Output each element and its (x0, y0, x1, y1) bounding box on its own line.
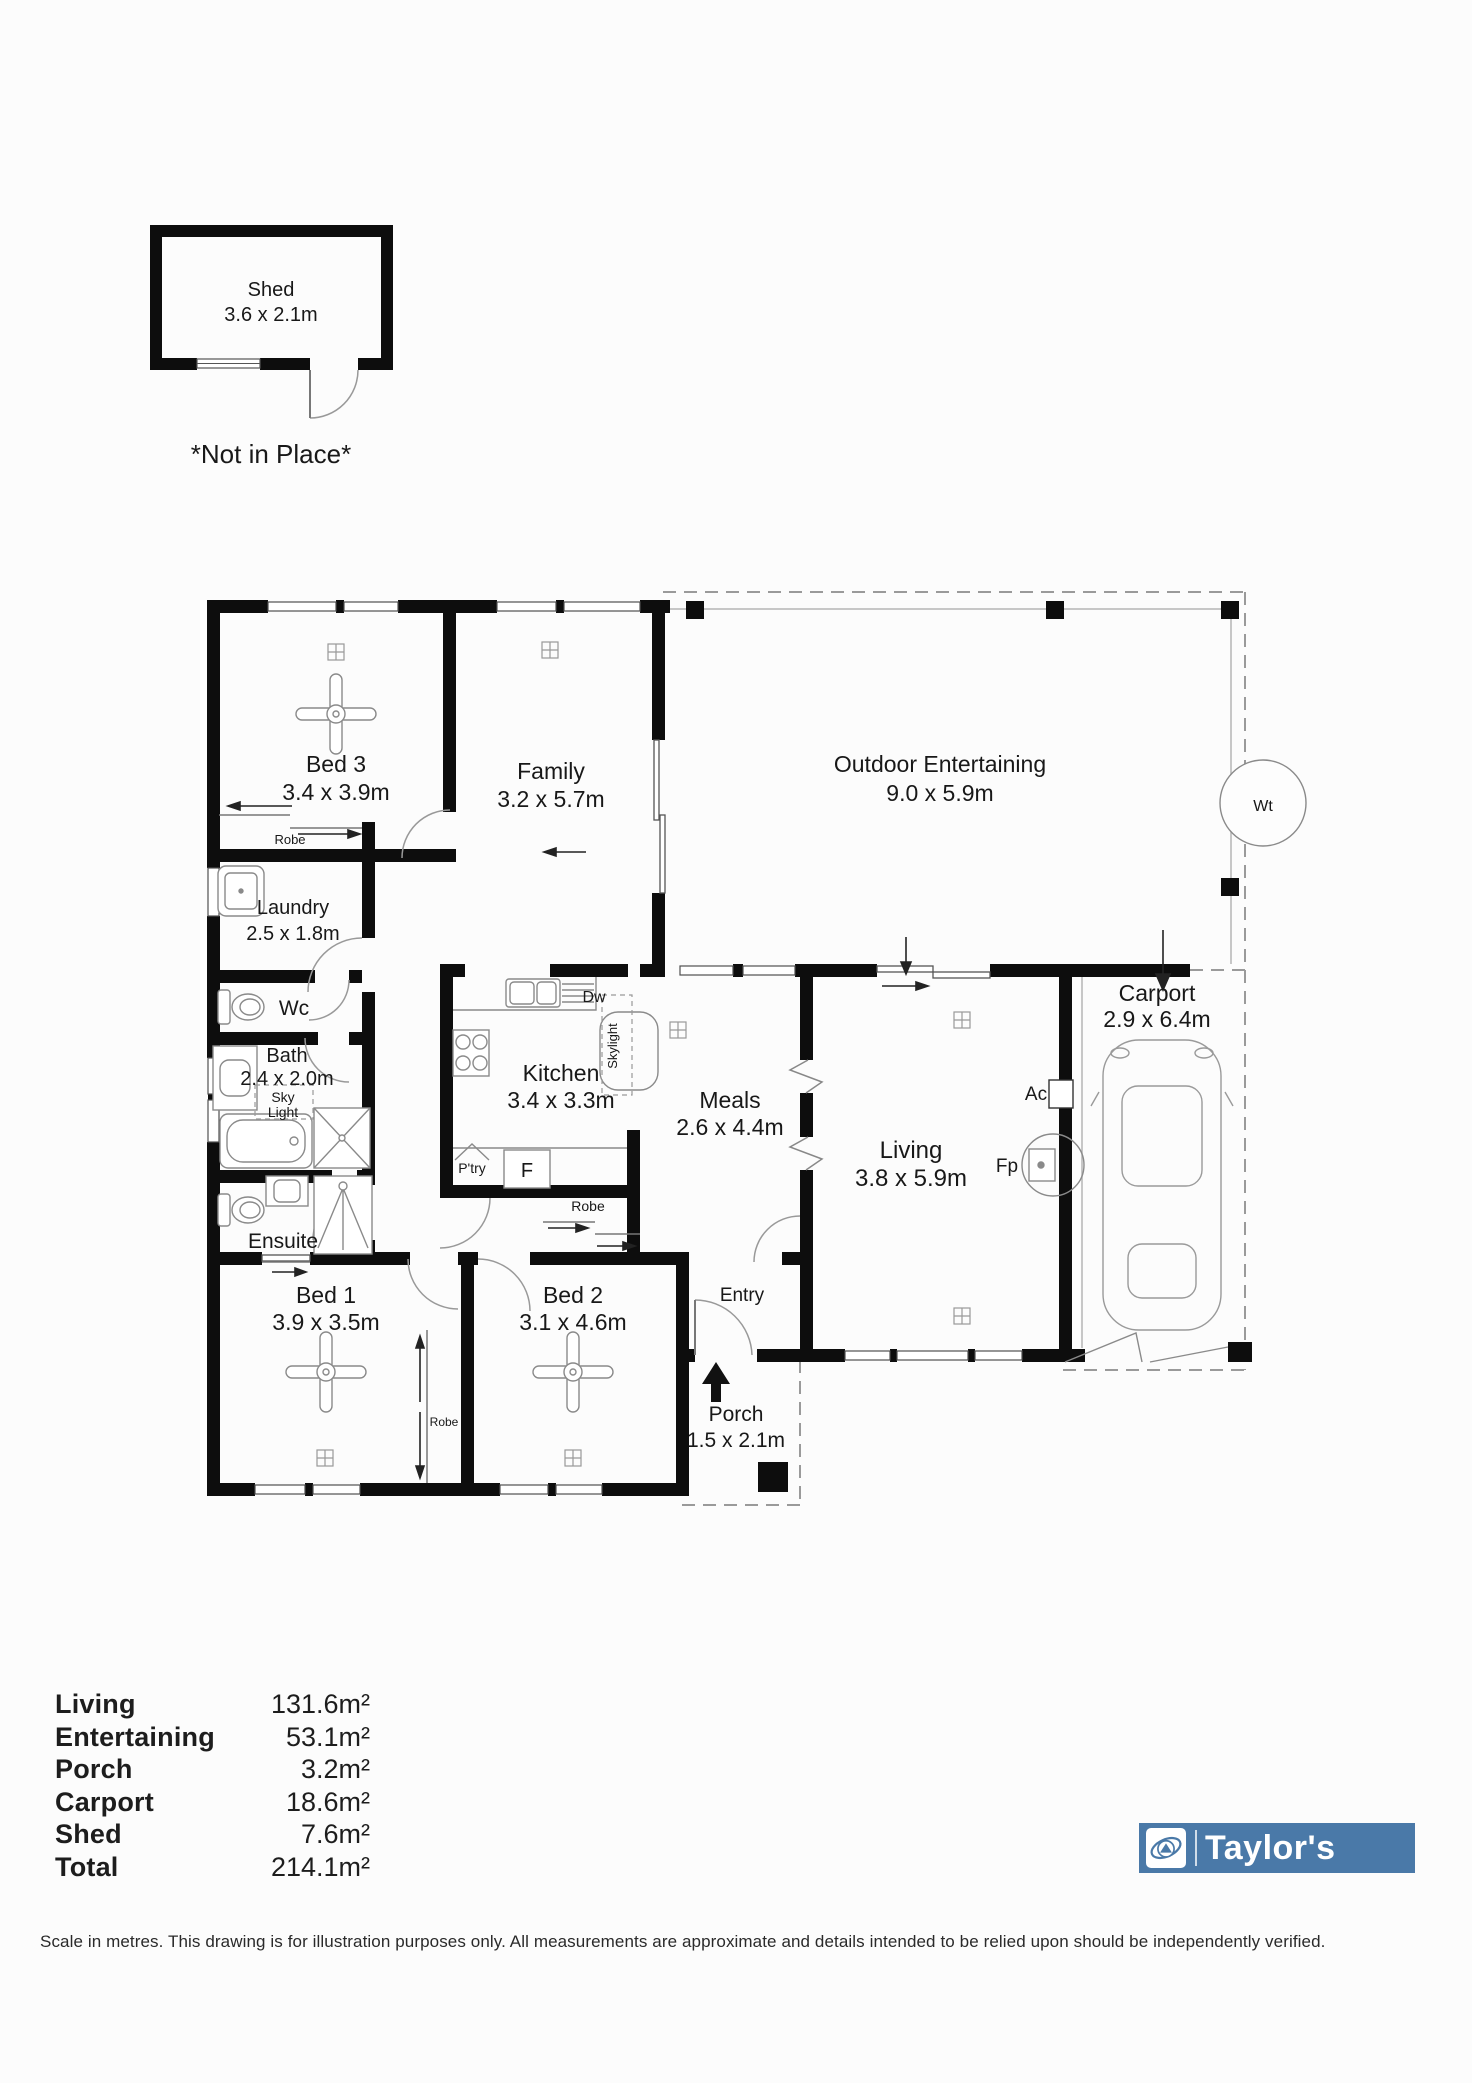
room-dims-outdoor: 9.0 x 5.9m (886, 780, 993, 806)
room-dims-bed2: 3.1 x 4.6m (519, 1309, 626, 1335)
vent-icon (565, 1450, 581, 1466)
summary-row: Porch 3.2m² (55, 1753, 375, 1786)
shed-door-arc (310, 370, 358, 418)
stove-icon (453, 1030, 489, 1076)
post (686, 601, 704, 619)
post (1221, 601, 1239, 619)
car-icon (1091, 1040, 1233, 1330)
ceiling-fan-icon (286, 1332, 366, 1412)
summary-label: Shed (55, 1818, 240, 1851)
dishwasher-label: Dw (582, 989, 606, 1006)
vent-icon (954, 1012, 970, 1028)
ensuite-basin-icon (266, 1176, 308, 1206)
ac-label: Ac (1025, 1084, 1047, 1105)
room-label-wc: Wc (279, 997, 309, 1020)
room-label-living: Living (880, 1137, 943, 1164)
wc-toilet-icon (218, 990, 264, 1024)
room-label-family: Family (517, 758, 585, 784)
summary-value: 18.6m² (240, 1786, 370, 1819)
summary-label: Entertaining (55, 1721, 240, 1754)
bath-shower-icon (314, 1108, 370, 1168)
vent-icon (954, 1308, 970, 1324)
ceiling-fan-icon (533, 1332, 613, 1412)
shed-dims: 3.6 x 2.1m (224, 304, 317, 326)
summary-row: Entertaining 53.1m² (55, 1721, 375, 1754)
summary-row: Shed 7.6m² (55, 1818, 375, 1851)
vent-icon (542, 642, 558, 658)
area-summary: Living 131.6m² Entertaining 53.1m² Porch… (55, 1688, 375, 1883)
vent-icon (670, 1022, 686, 1038)
post (1046, 601, 1064, 619)
carport-post (1228, 1342, 1252, 1362)
logo-text: Taylor's (1205, 1829, 1336, 1868)
walls (207, 600, 1252, 1496)
summary-label: Living (55, 1688, 240, 1721)
summary-row: Total 214.1m² (55, 1851, 375, 1884)
taylors-logo: Taylor's (1139, 1823, 1415, 1873)
not-in-place-label: *Not in Place* (191, 439, 351, 469)
taylors-logo-icon (1146, 1828, 1186, 1868)
fireplace-icon (1022, 1134, 1084, 1196)
room-label-meals: Meals (699, 1087, 760, 1113)
room-label-kitchen: Kitchen (523, 1060, 600, 1086)
summary-value: 53.1m² (240, 1721, 370, 1754)
pantry-icon (455, 1144, 489, 1160)
room-label-carport: Carport (1119, 980, 1196, 1006)
ac-unit-icon (1049, 1080, 1073, 1108)
robe-label-bed2: Robe (571, 1198, 605, 1214)
summary-label: Total (55, 1851, 240, 1884)
room-dims-carport: 2.9 x 6.4m (1103, 1006, 1210, 1032)
summary-row: Living 131.6m² (55, 1688, 375, 1721)
room-label-porch: Porch (709, 1403, 764, 1426)
pantry-label: P'try (458, 1160, 486, 1176)
labels: Shed 3.6 x 2.1m *Not in Place* Bed 3 3.4… (191, 279, 1274, 1452)
logo-divider (1195, 1830, 1197, 1866)
room-dims-family: 3.2 x 5.7m (497, 786, 604, 812)
ensuite-toilet-icon (218, 1194, 264, 1226)
room-dims-bath: 2.4 x 2.0m (240, 1068, 333, 1090)
bath-skylight-label1: Sky (271, 1089, 294, 1105)
fp-label: Fp (996, 1156, 1018, 1177)
summary-label: Carport (55, 1786, 240, 1819)
room-dims-living: 3.8 x 5.9m (855, 1165, 967, 1192)
room-dims-bed1: 3.9 x 3.5m (272, 1309, 379, 1335)
kitchen-skylight-label: Skylight (605, 1023, 620, 1069)
vent-icon (328, 644, 344, 660)
post (1221, 878, 1239, 896)
fridge-label: F (521, 1160, 533, 1182)
room-dims-kitchen: 3.4 x 3.3m (507, 1087, 614, 1113)
bathtub-icon (220, 1114, 312, 1168)
room-label-ensuite: Ensuite (248, 1230, 318, 1253)
summary-value: 3.2m² (240, 1753, 370, 1786)
carport-gate (1065, 1333, 1228, 1362)
disclaimer-text: Scale in metres. This drawing is for ill… (40, 1932, 1440, 1952)
dashed-boundaries (663, 592, 1245, 1505)
wt-label: Wt (1253, 798, 1273, 815)
floorplan-page: Shed 3.6 x 2.1m *Not in Place* Bed 3 3.4… (0, 0, 1472, 2083)
robe-label-beds: Robe (430, 1415, 459, 1429)
summary-row: Carport 18.6m² (55, 1786, 375, 1819)
ceiling-fan-icon (296, 674, 376, 754)
kitchen-sink-icon (453, 977, 596, 1010)
room-dims-laundry: 2.5 x 1.8m (246, 923, 339, 945)
summary-value: 7.6m² (240, 1818, 370, 1851)
room-dims-porch: 1.5 x 2.1m (687, 1429, 785, 1452)
room-label-laundry: Laundry (257, 897, 329, 919)
bath-skylight-label2: Light (268, 1104, 298, 1120)
summary-label: Porch (55, 1753, 240, 1786)
room-label-entry: Entry (720, 1285, 765, 1306)
room-label-outdoor: Outdoor Entertaining (834, 751, 1046, 777)
ensuite-shower-icon (314, 1176, 372, 1254)
room-dims-bed3: 3.4 x 3.9m (282, 779, 389, 805)
room-label-bed3: Bed 3 (306, 751, 366, 777)
robe-label-bed3: Robe (274, 832, 305, 847)
summary-value: 131.6m² (240, 1688, 370, 1721)
porch-post (758, 1462, 788, 1492)
entry-arrow-icon (702, 1362, 730, 1402)
room-label-bed1: Bed 1 (296, 1282, 356, 1308)
room-dims-meals: 2.6 x 4.4m (676, 1114, 783, 1140)
room-label-bath: Bath (266, 1045, 307, 1067)
summary-value: 214.1m² (240, 1851, 370, 1884)
room-label-bed2: Bed 2 (543, 1282, 603, 1308)
shed-label: Shed (248, 279, 295, 301)
vent-icon (317, 1450, 333, 1466)
